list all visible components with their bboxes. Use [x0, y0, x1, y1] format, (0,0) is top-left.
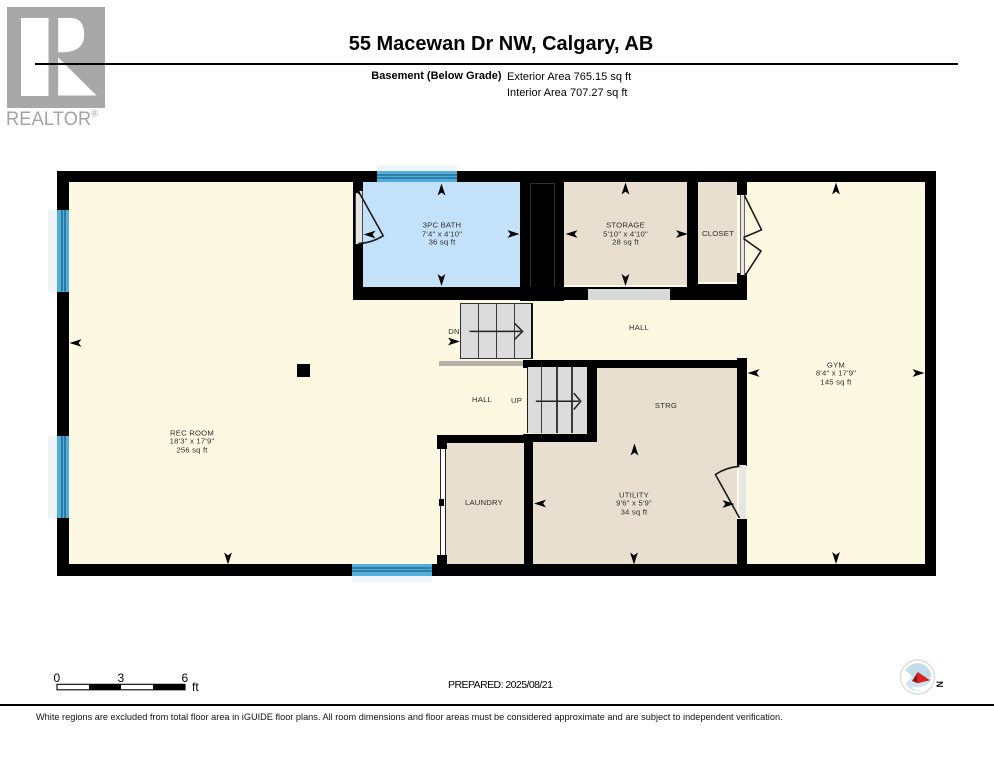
svg-text:N: N — [935, 681, 945, 688]
